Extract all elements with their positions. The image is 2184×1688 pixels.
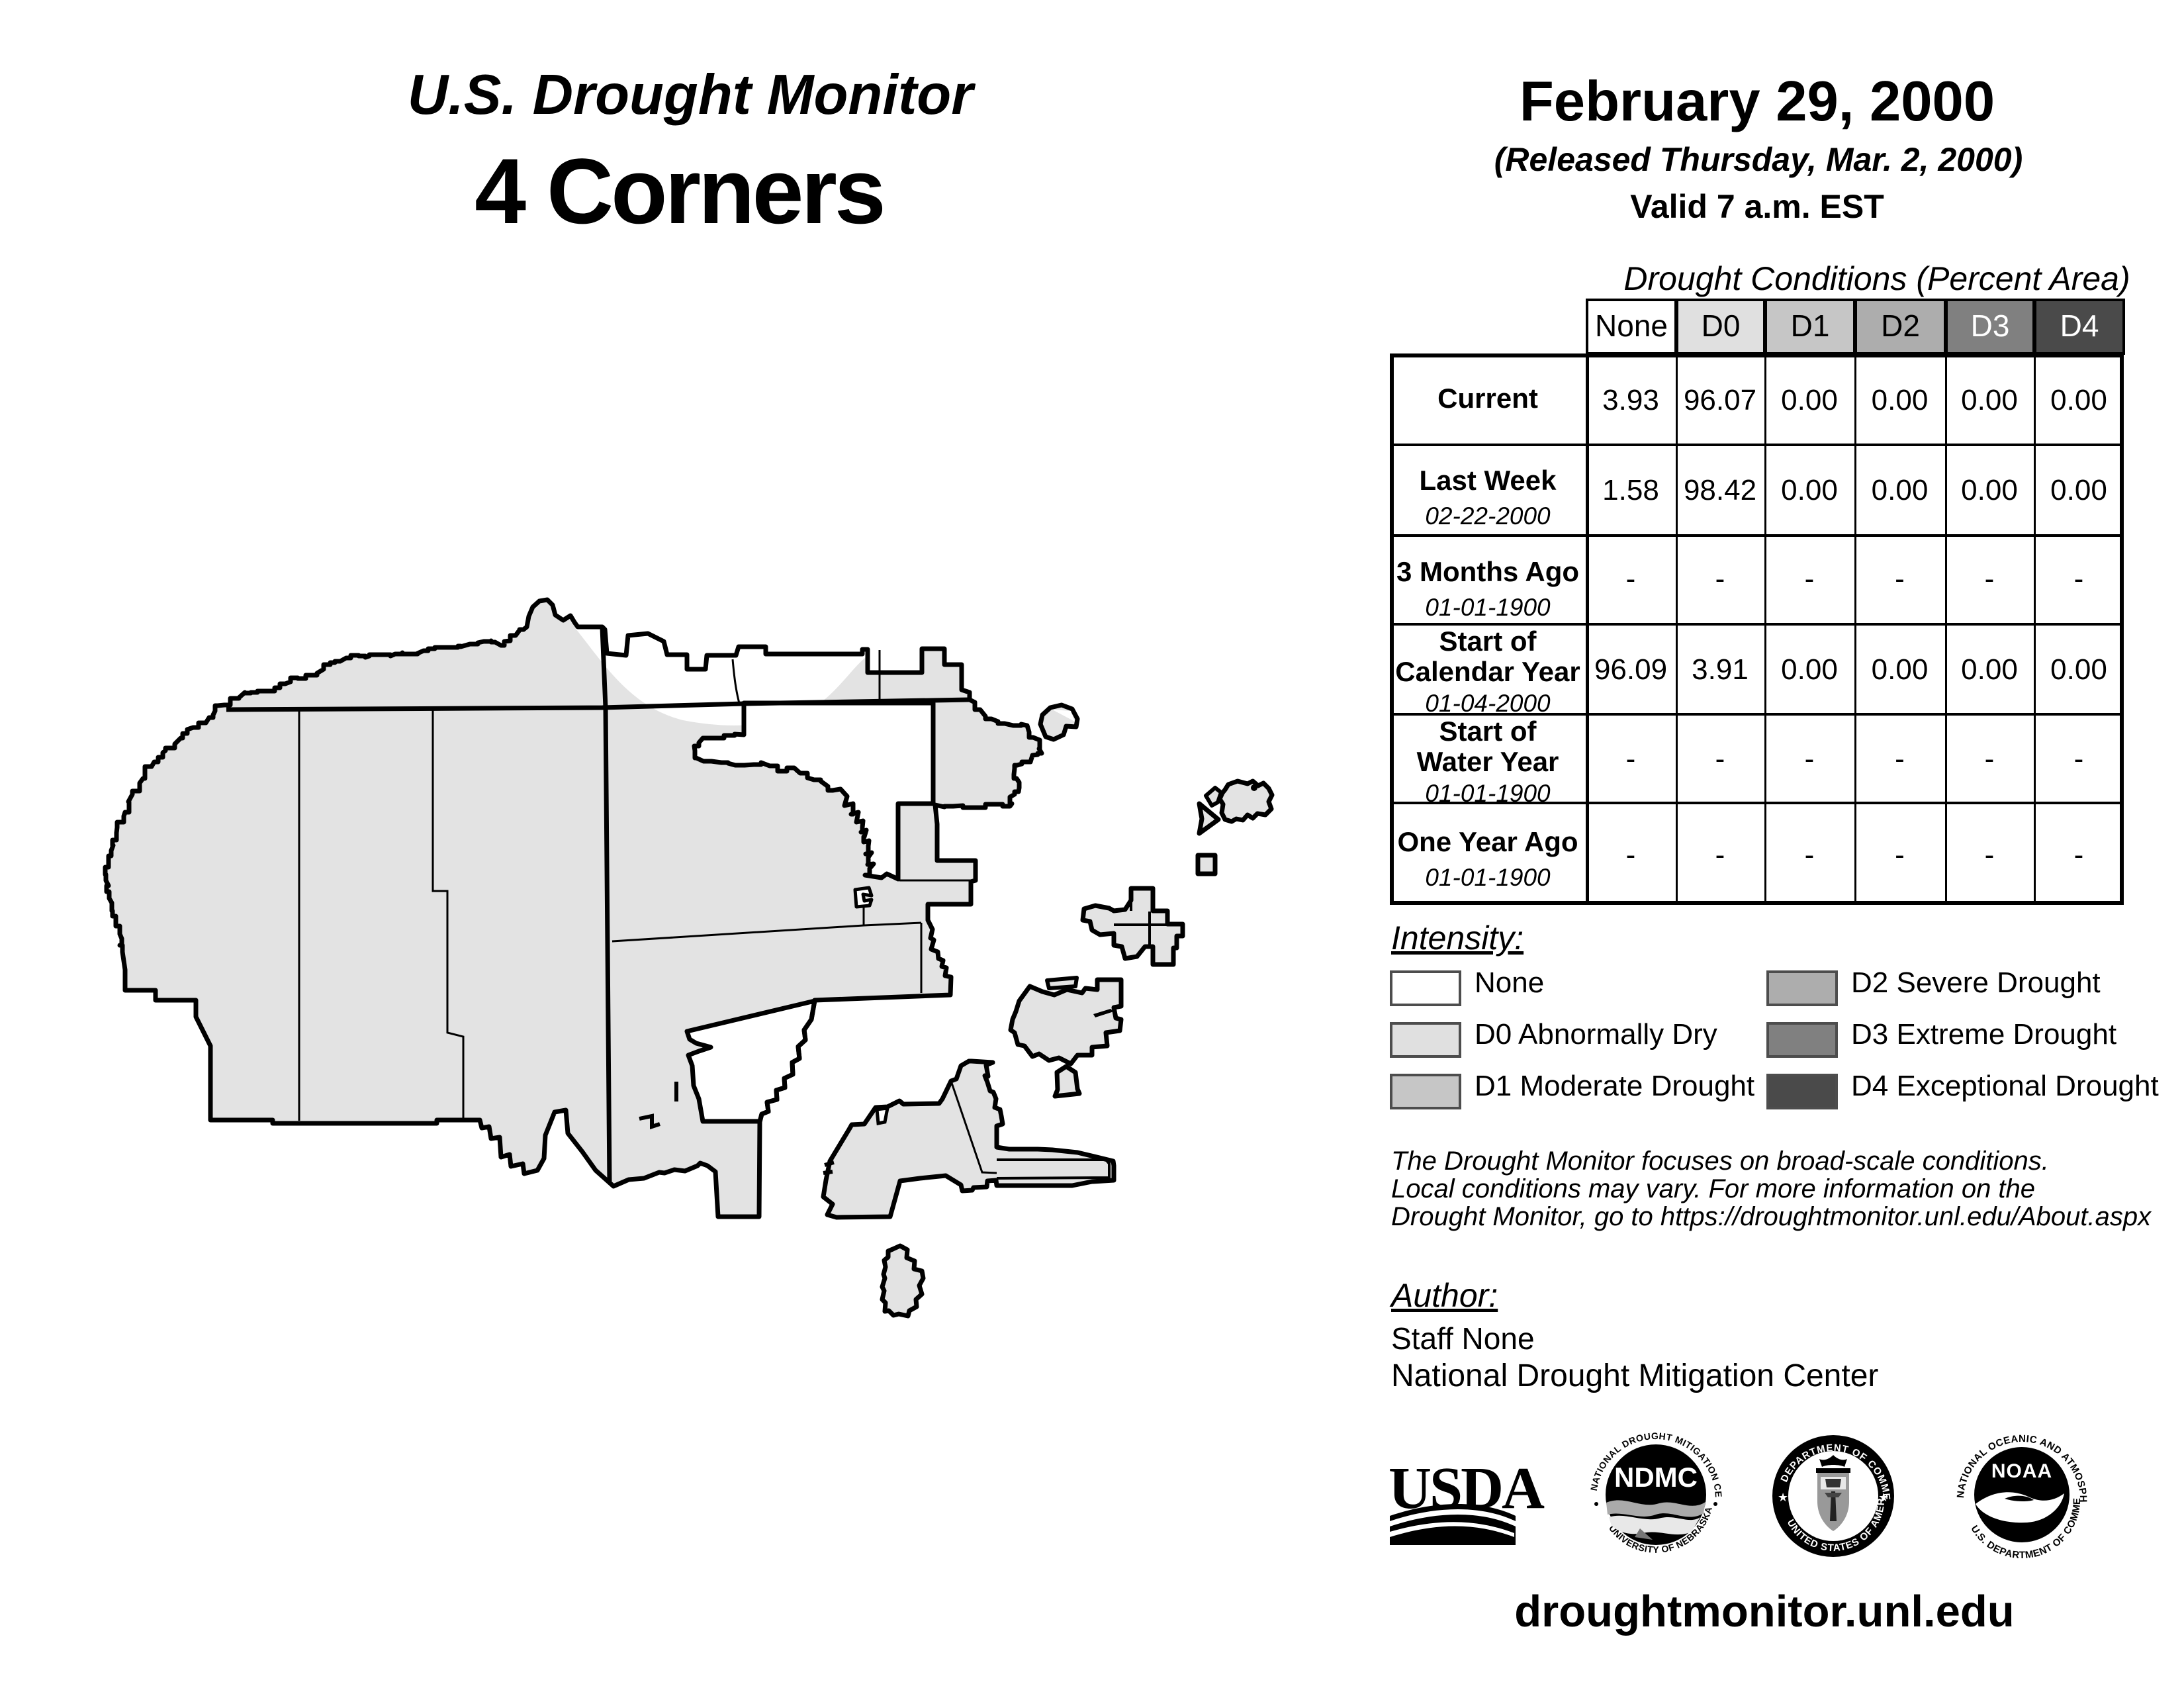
svg-text:★: ★ bbox=[1778, 1491, 1788, 1504]
svg-text:NDMC: NDMC bbox=[1614, 1462, 1698, 1493]
svg-text:★: ★ bbox=[1878, 1491, 1889, 1504]
svg-text:NOAA: NOAA bbox=[1991, 1460, 2052, 1482]
